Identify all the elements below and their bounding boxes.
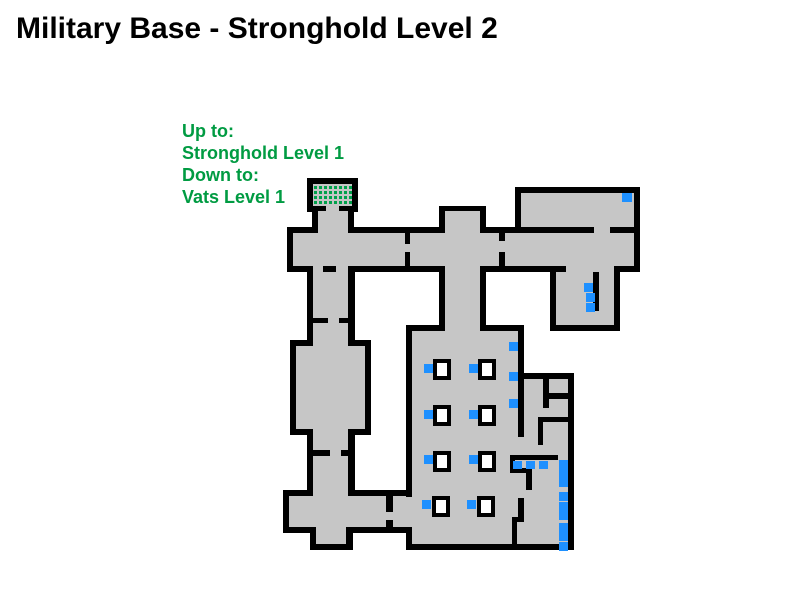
interior-wall (538, 417, 543, 445)
item-marker (559, 511, 568, 520)
room-floor (316, 527, 346, 544)
item-marker (584, 283, 593, 292)
stairs-dot (314, 196, 317, 199)
stairs-dot (339, 196, 342, 199)
item-marker (424, 455, 433, 464)
stairs-dot (324, 201, 327, 204)
room-floor (296, 346, 365, 429)
stairs-dot (349, 196, 352, 199)
room-floor (318, 211, 348, 233)
stairs-dot (324, 191, 327, 194)
doorway-opening (313, 339, 348, 348)
item-marker (586, 303, 595, 312)
stairs-dot (344, 201, 347, 204)
item-marker (509, 342, 518, 351)
object-item (482, 455, 492, 468)
stairs-dot (349, 186, 352, 189)
room-floor (505, 233, 634, 266)
stairs-dot (329, 186, 332, 189)
stairs-dot (339, 186, 342, 189)
doorway-opening (404, 497, 414, 527)
object-item (482, 363, 492, 376)
room-floor (313, 429, 348, 497)
stairs-dot (349, 201, 352, 204)
room-floor (445, 211, 480, 236)
interior-wall (405, 233, 410, 244)
item-marker (559, 523, 568, 532)
interior-wall (543, 379, 549, 408)
room-floor (445, 266, 480, 331)
item-marker (622, 193, 632, 202)
interior-wall (549, 393, 568, 399)
room-floor (313, 272, 348, 341)
item-marker (509, 399, 518, 408)
stairs-dot (339, 201, 342, 204)
interior-wall (526, 473, 532, 490)
interior-wall (339, 318, 348, 323)
item-marker (422, 500, 431, 509)
object-item (482, 409, 492, 422)
stairs-dot (314, 186, 317, 189)
item-marker (559, 492, 568, 501)
stairs-dot (344, 196, 347, 199)
item-marker (469, 364, 478, 373)
stairs-dot (324, 186, 327, 189)
interior-wall (510, 455, 558, 460)
stairs-dot (339, 191, 342, 194)
item-marker (586, 293, 595, 302)
stairs-dot (349, 191, 352, 194)
doorway-opening (594, 225, 610, 235)
stairs-dot (334, 196, 337, 199)
room-floor (293, 233, 499, 266)
item-marker (513, 461, 522, 469)
object-item (436, 500, 446, 513)
level-map (0, 0, 800, 600)
doorway-opening (326, 202, 339, 214)
item-marker (539, 461, 548, 469)
interior-wall (386, 496, 393, 512)
stairs-dot (329, 196, 332, 199)
interior-wall (313, 450, 330, 456)
interior-wall (386, 520, 393, 527)
stairs-dot (314, 191, 317, 194)
object-item (437, 455, 447, 468)
interior-wall (512, 522, 517, 544)
item-marker (559, 542, 568, 551)
stairs-dot (319, 186, 322, 189)
stairs-dot (324, 196, 327, 199)
stairs-dot (319, 201, 322, 204)
interior-wall (323, 266, 336, 272)
interior-wall (512, 517, 524, 522)
stairs-dot (329, 201, 332, 204)
item-marker (559, 532, 568, 541)
interior-wall (341, 450, 348, 456)
interior-wall (313, 318, 328, 323)
stairs-dot (319, 191, 322, 194)
stairs-dot (314, 201, 317, 204)
item-marker (559, 460, 568, 469)
object-item (437, 363, 447, 376)
item-marker (559, 502, 568, 511)
stairs-dot (319, 196, 322, 199)
item-marker (469, 410, 478, 419)
stairs-dot (334, 186, 337, 189)
item-marker (424, 364, 433, 373)
doorway-opening (497, 241, 507, 252)
item-marker (509, 372, 518, 381)
doorway-opening (566, 264, 614, 274)
object-item (437, 409, 447, 422)
stairs-dot (334, 191, 337, 194)
item-marker (559, 478, 568, 487)
item-marker (424, 410, 433, 419)
room-floor (556, 272, 614, 325)
room-floor (518, 437, 524, 544)
room-floor (412, 331, 518, 544)
item-marker (469, 455, 478, 464)
stairs-dot (334, 201, 337, 204)
stairs-dot (329, 191, 332, 194)
interior-wall (405, 252, 410, 266)
item-marker (559, 469, 568, 478)
item-marker (467, 500, 476, 509)
room-floor (521, 193, 634, 227)
item-marker (526, 461, 535, 469)
stairs-dot (344, 186, 347, 189)
stairs-dot (344, 191, 347, 194)
object-item (481, 500, 491, 513)
